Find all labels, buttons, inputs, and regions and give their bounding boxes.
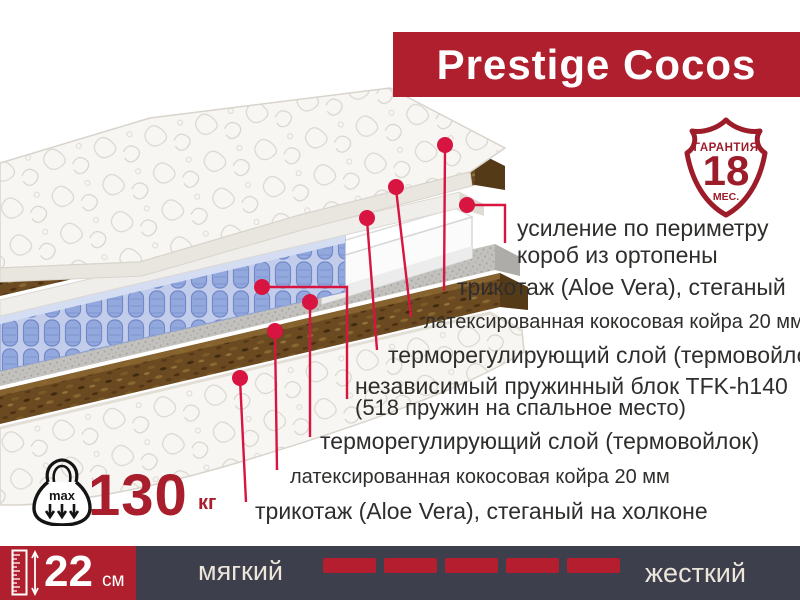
product-infographic: Prestige Cocos ГАРАНТИЯ 18 МЕС. усиление… [0, 0, 800, 600]
height-block: 22 см [0, 546, 136, 600]
firmness-dash [323, 558, 376, 573]
firmness-dash [384, 558, 437, 573]
firmness-dash [567, 558, 620, 573]
annotation-spring-block: независимый пружинный блок TFK-h140 (518… [355, 376, 788, 418]
annotation-perimeter-box: усиление по периметру короб из ортопены [517, 215, 768, 269]
soft-label: мягкий [198, 556, 283, 587]
mattress-height-unit: см [102, 570, 125, 592]
warranty-months: 18 [703, 147, 750, 194]
max-weight-value: 130 [88, 462, 188, 529]
mattress-height-value: 22 [44, 547, 93, 597]
firmness-dash [445, 558, 498, 573]
annotation-thermo-top: терморегулирующий слой (термовойлок) [388, 342, 800, 369]
double-arrow-icon [32, 552, 38, 594]
title-banner: Prestige Cocos [393, 32, 800, 97]
max-weight-icon: max [30, 456, 94, 526]
warranty-unit: МЕС. [713, 191, 739, 203]
annotation-coir-top: латексированная кокосовая койра 20 мм [424, 311, 800, 334]
annotation-knit-bottom: трикотаж (Aloe Vera), стеганый на холкон… [255, 498, 708, 525]
firmness-scale [323, 558, 620, 573]
product-title: Prestige Cocos [437, 41, 757, 89]
max-weight-unit: кг [198, 492, 216, 515]
annotation-coir-bottom: латексированная кокосовая койра 20 мм [290, 466, 670, 489]
down-arrows-icon [46, 504, 78, 517]
firmness-bar: 22 см мягкий жесткий [0, 546, 800, 600]
annotation-thermo-bottom: терморегулирующий слой (термовойлок) [320, 428, 759, 455]
annotation-knit-top: трикотаж (Aloe Vera), стеганый [457, 274, 786, 301]
warranty-badge: ГАРАНТИЯ 18 МЕС. [666, 112, 786, 222]
max-label: max [49, 488, 76, 503]
firmness-dash [506, 558, 559, 573]
hard-label: жесткий [645, 558, 746, 589]
ruler-icon [11, 549, 41, 597]
